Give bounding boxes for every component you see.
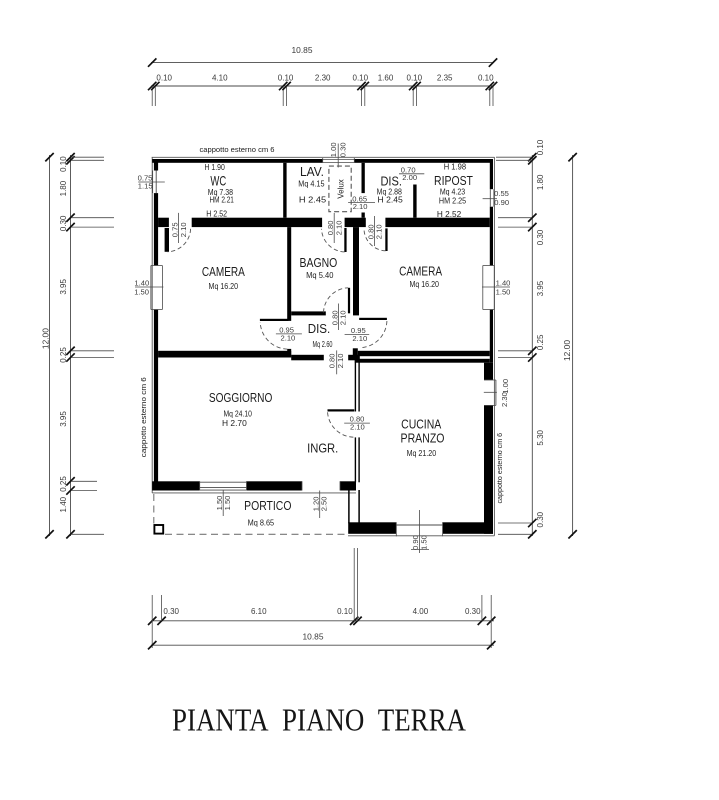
svg-text:0.10: 0.10 (536, 139, 545, 155)
svg-text:0.30: 0.30 (465, 607, 481, 616)
svg-text:cappotto esterno cm 6: cappotto esterno cm 6 (141, 377, 148, 457)
svg-text:HM 2.21: HM 2.21 (210, 196, 234, 205)
svg-text:0.30: 0.30 (59, 215, 68, 231)
svg-text:0.10: 0.10 (353, 74, 369, 83)
svg-text:1.50: 1.50 (134, 288, 149, 297)
svg-text:1.40: 1.40 (134, 279, 149, 288)
svg-text:1.50: 1.50 (223, 496, 232, 511)
svg-text:Mq 8.65: Mq 8.65 (248, 519, 275, 528)
svg-text:CUCINA: CUCINA (401, 418, 442, 432)
svg-text:4.00: 4.00 (413, 607, 429, 616)
svg-text:3.95: 3.95 (536, 280, 545, 296)
svg-text:6.10: 6.10 (251, 607, 267, 616)
svg-text:1.15: 1.15 (138, 182, 153, 191)
svg-text:2.10: 2.10 (353, 202, 368, 211)
svg-text:0.25: 0.25 (536, 334, 545, 350)
svg-text:2.10: 2.10 (375, 224, 384, 239)
svg-text:LAV.: LAV. (300, 165, 324, 179)
svg-text:2.35: 2.35 (437, 74, 453, 83)
svg-text:2.10: 2.10 (179, 222, 188, 237)
svg-text:WC: WC (210, 172, 226, 188)
svg-text:H 1.90: H 1.90 (205, 163, 226, 172)
svg-text:H 2.45: H 2.45 (299, 195, 327, 204)
svg-text:CAMERA: CAMERA (202, 265, 246, 279)
svg-text:2.10: 2.10 (350, 423, 365, 432)
svg-text:SOGGIORNO: SOGGIORNO (209, 391, 273, 405)
svg-text:PORTICO: PORTICO (244, 499, 292, 513)
svg-text:3.95: 3.95 (59, 279, 68, 295)
svg-text:3.95: 3.95 (59, 411, 68, 427)
svg-text:Mq 16.20: Mq 16.20 (209, 282, 239, 291)
svg-text:H 2.52: H 2.52 (206, 209, 227, 218)
svg-text:4.10: 4.10 (212, 74, 228, 83)
svg-text:1.40: 1.40 (59, 496, 68, 512)
svg-text:5.30: 5.30 (536, 429, 545, 445)
svg-text:BAGNO: BAGNO (300, 256, 338, 270)
svg-text:0.10: 0.10 (278, 74, 294, 83)
svg-text:Mq 21.20: Mq 21.20 (407, 449, 437, 458)
svg-text:2.10: 2.10 (334, 221, 343, 236)
svg-text:0.10: 0.10 (407, 74, 423, 83)
svg-text:1.00: 1.00 (501, 379, 510, 394)
svg-text:1.80: 1.80 (536, 174, 545, 190)
svg-text:12.00: 12.00 (41, 328, 51, 349)
svg-text:2.10: 2.10 (336, 354, 345, 369)
svg-text:Mq 4.23: Mq 4.23 (440, 188, 465, 197)
svg-text:DIS.: DIS. (308, 322, 331, 336)
svg-text:HM 2.25: HM 2.25 (439, 196, 467, 205)
svg-text:cappotto esterno cm 6: cappotto esterno cm 6 (497, 433, 504, 504)
svg-text:2.10: 2.10 (281, 333, 296, 342)
svg-text:PIANTA PIANO TERRA: PIANTA PIANO TERRA (172, 702, 466, 738)
svg-text:0.25: 0.25 (59, 347, 68, 363)
svg-text:2.10: 2.10 (352, 334, 367, 343)
svg-text:PRANZO: PRANZO (401, 431, 445, 445)
svg-text:0.10: 0.10 (156, 74, 172, 83)
svg-text:H 2.45: H 2.45 (378, 195, 404, 204)
svg-text:10.85: 10.85 (292, 45, 313, 55)
svg-text:0.30: 0.30 (536, 229, 545, 245)
svg-text:1.40: 1.40 (496, 279, 511, 288)
svg-text:2.30: 2.30 (500, 392, 509, 407)
svg-text:Mq 16.20: Mq 16.20 (409, 280, 439, 289)
svg-text:0.55: 0.55 (494, 189, 509, 198)
svg-text:0.30: 0.30 (163, 607, 179, 616)
svg-text:Mq 2.60: Mq 2.60 (313, 340, 333, 349)
svg-text:0.90: 0.90 (494, 198, 509, 207)
svg-text:1.80: 1.80 (59, 180, 68, 196)
svg-text:Mq 4.15: Mq 4.15 (298, 179, 325, 188)
svg-text:DIS.: DIS. (380, 174, 402, 188)
svg-text:2.50: 2.50 (320, 497, 329, 512)
svg-text:10.85: 10.85 (303, 631, 324, 641)
svg-text:H 2.52: H 2.52 (437, 210, 461, 219)
svg-text:12.00: 12.00 (562, 340, 572, 361)
svg-text:0.30: 0.30 (339, 142, 348, 157)
svg-text:0.25: 0.25 (59, 476, 68, 492)
svg-text:CAMERA: CAMERA (399, 265, 443, 279)
svg-text:1.50: 1.50 (419, 535, 428, 550)
svg-text:1.50: 1.50 (496, 288, 511, 297)
svg-text:Mq 5.40: Mq 5.40 (306, 271, 334, 280)
svg-text:1.60: 1.60 (378, 74, 394, 83)
svg-text:0.10: 0.10 (478, 74, 494, 83)
svg-text:H 2.70: H 2.70 (222, 419, 248, 428)
svg-text:0.30: 0.30 (536, 511, 545, 527)
svg-text:RIPOST: RIPOST (434, 174, 473, 188)
svg-text:0.10: 0.10 (337, 607, 353, 616)
svg-text:0.10: 0.10 (59, 156, 68, 172)
svg-text:INGR.: INGR. (307, 442, 338, 456)
svg-text:Mq 24.10: Mq 24.10 (224, 409, 253, 418)
svg-text:Velux: Velux (337, 179, 346, 199)
svg-text:2.30: 2.30 (315, 74, 331, 83)
svg-text:H 1.98: H 1.98 (444, 162, 466, 171)
svg-text:cappotto esterno cm 6: cappotto esterno cm 6 (200, 147, 275, 154)
svg-text:2.00: 2.00 (402, 173, 417, 182)
svg-text:2.10: 2.10 (339, 310, 348, 325)
svg-text:1.00: 1.00 (329, 142, 338, 157)
